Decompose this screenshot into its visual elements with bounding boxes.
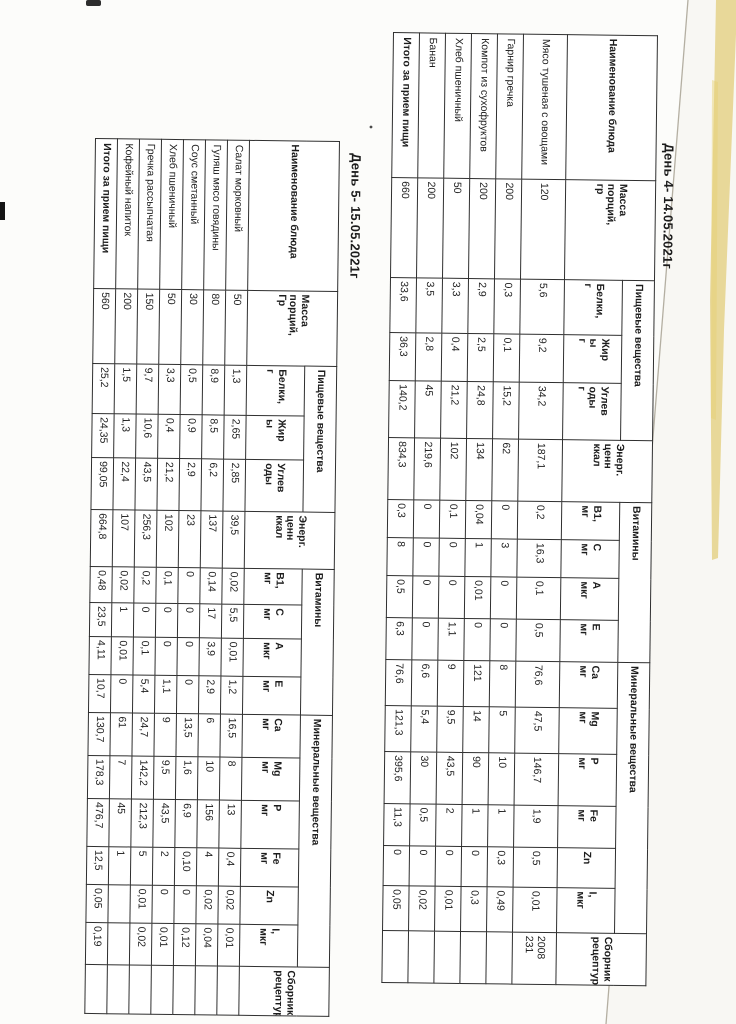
recipe-ref-cell [173, 966, 196, 1015]
value-cell: 0,2 [134, 567, 156, 603]
value-cell: 0,1 [439, 500, 465, 538]
dish-name-cell: Гарнир гречка [496, 34, 524, 179]
value-cell: 0,01 [151, 923, 174, 965]
value-cell: 50 [442, 178, 469, 278]
col-subheader-mineral: Mg мг [241, 757, 300, 801]
recipe-ref-cell [217, 966, 240, 1015]
value-cell: 0 [155, 603, 177, 637]
value-cell: 0,10 [174, 848, 196, 886]
value-cell: 0,1 [516, 577, 561, 620]
value-cell: 4,11 [89, 636, 111, 674]
value-cell: 9,5 [153, 756, 176, 799]
value-cell: 8 [219, 757, 242, 800]
dish-name-cell: Банан [418, 33, 446, 178]
col-header-energy: Энерг. ценн ккал [244, 511, 335, 569]
value-cell: 5,5 [221, 604, 243, 638]
value-cell: 2,8 [415, 333, 442, 381]
value-cell: 0,5 [513, 847, 557, 888]
day5-table-body: Салат морковный501,32,652,8539,50,025,50… [85, 138, 250, 1015]
value-cell: 2,85 [223, 459, 246, 511]
value-cell: 1,3 [224, 365, 247, 415]
value-cell: 24,35 [92, 413, 115, 457]
value-cell: 24,8 [467, 381, 494, 438]
value-cell: 0 [176, 676, 198, 714]
col-header-energy: Энерг. ценн ккал [562, 440, 653, 503]
col-subheader-vitamin: B1, мг [561, 502, 619, 541]
value-cell: 0,5 [410, 804, 437, 846]
value-cell: 6 [198, 714, 221, 757]
value-cell: 0 [491, 501, 517, 539]
value-cell: 24,7 [132, 713, 155, 756]
value-cell: 9 [437, 660, 464, 706]
value-cell: 0,01 [217, 924, 240, 966]
col-group-minerals: Минеральные вещества [297, 715, 332, 967]
col-subheader-vitamin: C мг [243, 604, 301, 639]
value-cell: 560 [93, 288, 116, 363]
col-subheader-mineral: Zn [557, 848, 615, 889]
value-cell: 43,5 [153, 799, 176, 847]
value-cell: 834,3 [388, 438, 415, 500]
value-cell: 13,5 [176, 714, 199, 757]
value-cell: 140,2 [389, 381, 416, 438]
value-cell: 76,6 [385, 660, 412, 706]
col-subheader-mineral: P мг [241, 800, 300, 849]
value-cell: 43,5 [436, 752, 463, 804]
value-cell: 0,01 [464, 576, 491, 618]
recipe-ref-cell [151, 965, 174, 1014]
value-cell: 0,01 [435, 886, 462, 931]
col-subheader-vitamin: B1, мг [244, 568, 302, 605]
value-cell: 660 [391, 178, 418, 278]
col-group-minerals: Минеральные вещества [615, 662, 650, 933]
col-group-vitamins: Витамины [300, 569, 334, 715]
col-header-mass: Масса порций, гр [564, 180, 655, 281]
col-subheader-mineral: Ca мг [559, 662, 618, 709]
value-cell: 0,48 [90, 566, 112, 602]
value-cell: 9 [154, 713, 177, 756]
value-cell: 8 [387, 538, 413, 576]
value-cell: 0 [490, 577, 517, 619]
value-cell: 0 [174, 886, 196, 924]
value-cell: 142,2 [131, 756, 154, 799]
value-cell: 0,4 [158, 414, 181, 458]
value-cell: 61 [110, 713, 133, 756]
value-cell: 0 [490, 619, 517, 661]
value-cell: 36,3 [389, 333, 416, 381]
col-subheader-vitamin: E мг [560, 620, 619, 663]
value-cell: 0 [177, 638, 199, 676]
col-subheader-mineral: Fe мг [240, 848, 298, 887]
value-cell: 1 [462, 804, 489, 846]
value-cell: 8,9 [202, 365, 225, 415]
dish-name-cell: Итого за прием пищи [94, 138, 118, 288]
day4-sheet: День 4- 14.05.2021г Наименование блюдаМа… [376, 32, 698, 986]
value-cell: 212,3 [131, 799, 154, 847]
scanned-page: { "colors": { "paper": "#fcfcfa", "table… [0, 0, 736, 1024]
col-subheader-mineral: I, мкг [239, 924, 298, 967]
value-cell: 16,5 [220, 714, 243, 757]
value-cell: 0,04 [195, 924, 218, 966]
value-cell: 187,1 [518, 439, 563, 502]
col-subheader-nutrient: Углев оды г [563, 383, 622, 441]
dish-name-cell: Компот из сухофруктов [470, 34, 498, 179]
value-cell: 2,9 [468, 279, 495, 334]
day5-sheet: День 5- 15.05.2021г Наименование блюдаМа… [85, 138, 376, 1016]
col-subheader-vitamin: A мкг [560, 578, 619, 621]
value-cell: 120 [520, 179, 565, 280]
dish-name-cell: Кофейный напиток [116, 139, 140, 289]
value-cell: 0 [178, 568, 200, 604]
value-cell: 0,01 [130, 885, 152, 923]
value-cell: 45 [109, 799, 132, 847]
col-subheader-nutrient: Жир ы г [563, 335, 622, 384]
value-cell: 0,49 [487, 887, 514, 932]
value-cell: 2 [152, 847, 174, 885]
col-subheader-mineral: Zn [240, 886, 298, 925]
value-cell: 476,7 [87, 798, 110, 846]
value-cell: 219,6 [414, 438, 441, 500]
value-cell: 50 [225, 290, 248, 365]
recipe-ref-cell [107, 965, 130, 1014]
value-cell: 150 [137, 289, 160, 364]
value-cell: 0 [110, 675, 132, 713]
col-subheader-nutrient: Белки, г [564, 280, 623, 336]
value-cell: 33,6 [390, 278, 417, 333]
value-cell: 15,2 [493, 382, 520, 439]
value-cell: 1 [465, 538, 491, 576]
value-cell: 107 [112, 510, 135, 567]
col-group-nutrients: Пищевые вещества [303, 366, 337, 512]
value-cell: 5 [130, 847, 152, 885]
value-cell: 22,4 [113, 458, 136, 510]
col-group-nutrients: Пищевые вещества [621, 280, 655, 440]
value-cell: 0,4 [441, 333, 468, 381]
value-cell: 102 [156, 510, 179, 567]
value-cell [107, 923, 130, 965]
day4-menu-table: Наименование блюдаМасса порций, грПищевы… [381, 32, 658, 986]
recipe-ref-cell [408, 931, 435, 983]
recipe-ref-cell: 2008 231 [512, 932, 557, 985]
value-cell: 11,3 [384, 804, 411, 846]
value-cell: 6,6 [411, 660, 438, 706]
recipe-ref-cell [85, 964, 108, 1013]
value-cell: 9,2 [519, 334, 564, 383]
value-cell: 0 [435, 846, 461, 886]
value-cell: 1 [108, 847, 130, 885]
recipe-ref-cell [129, 965, 152, 1014]
value-cell: 2,9 [198, 676, 220, 714]
value-cell: 0,3 [461, 886, 488, 931]
value-cell: 0 [413, 500, 439, 538]
col-subheader-mineral: Mg мг [559, 708, 618, 755]
value-cell: 146,7 [514, 753, 559, 806]
value-cell: 21,2 [441, 381, 468, 438]
dish-name-cell: Салат морковный [226, 140, 250, 290]
value-cell: 0,3 [494, 279, 521, 334]
dish-name-cell: Итого за прием пищи [392, 33, 420, 178]
value-cell: 0,01 [111, 637, 133, 675]
col-header-recipe: Сборник рецептур [556, 933, 647, 986]
value-cell: 39,5 [222, 511, 245, 568]
value-cell: 137 [200, 511, 223, 568]
value-cell: 0,02 [129, 923, 152, 965]
value-cell: 200 [468, 179, 495, 279]
dish-name-cell: Гуляш мясо говядины [204, 140, 228, 290]
value-cell: 9,5 [437, 706, 464, 752]
value-cell: 14 [463, 706, 490, 752]
col-subheader-nutrient: Углев оды [245, 459, 304, 512]
value-cell: 0,1 [493, 334, 520, 382]
value-cell: 200 [494, 179, 521, 279]
value-cell: 2,65 [224, 415, 247, 459]
value-cell: 0 [439, 538, 465, 576]
value-cell: 0,02 [112, 567, 134, 603]
dish-name-cell: Гречка рассыпчатая [138, 139, 162, 289]
value-cell: 130,7 [88, 712, 111, 755]
day5-menu-table: Наименование блюдаМасса порций, ГрПищевы… [84, 138, 340, 1017]
col-subheader-vitamin: C мг [561, 540, 619, 579]
value-cell: 395,6 [384, 752, 411, 804]
value-cell: 10 [197, 757, 220, 800]
value-cell: 200 [115, 289, 138, 364]
value-cell: 4 [196, 848, 218, 886]
value-cell: 0,12 [173, 924, 196, 966]
col-header-dish-name: Наименование блюда [248, 140, 340, 291]
value-cell: 0,02 [218, 886, 240, 924]
value-cell: 3,3 [442, 278, 469, 333]
value-cell: 3,3 [158, 364, 181, 414]
value-cell: 121 [463, 660, 490, 706]
value-cell: 0,9 [180, 415, 203, 459]
value-cell: 0,01 [221, 638, 243, 676]
value-cell: 0 [177, 604, 199, 638]
recipe-ref-cell [460, 931, 487, 983]
value-cell: 0 [438, 576, 465, 618]
value-cell: 3 [491, 539, 517, 577]
value-cell: 43,5 [135, 458, 158, 510]
value-cell: 3,9 [199, 638, 221, 676]
col-subheader-mineral: P мг [558, 754, 617, 807]
value-cell: 0 [413, 538, 439, 576]
value-cell: 10,7 [88, 674, 110, 712]
value-cell: 8,5 [202, 415, 225, 459]
value-cell: 2 [436, 804, 463, 846]
value-cell: 1,2 [220, 676, 242, 714]
value-cell: 0,04 [465, 500, 491, 538]
value-cell: 0,3 [387, 500, 413, 538]
value-cell: 0 [155, 637, 177, 675]
value-cell: 0,02 [409, 886, 436, 931]
value-cell: 0,4 [218, 848, 240, 886]
recipe-ref-cell [382, 931, 409, 983]
value-cell: 45 [415, 381, 442, 438]
value-cell: 1,6 [175, 757, 198, 800]
value-cell: 121,3 [385, 706, 412, 752]
value-cell: 0,02 [196, 886, 218, 924]
value-cell: 0 [412, 618, 439, 660]
col-subheader-vitamin: E мг [242, 676, 300, 715]
value-cell: 7 [109, 756, 132, 799]
col-subheader-mineral: I, мкг [557, 888, 616, 934]
col-subheader-mineral: Ca мг [242, 714, 301, 758]
recipe-ref-cell [434, 931, 461, 983]
value-cell: 1,1 [154, 675, 176, 713]
col-subheader-vitamin: A мкг [243, 638, 301, 677]
value-cell: 0 [383, 846, 409, 886]
value-cell: 0,1 [156, 567, 178, 603]
value-cell: 10 [488, 753, 515, 805]
value-cell: 5 [489, 707, 516, 753]
value-cell: 0 [133, 603, 155, 637]
dish-name-cell: Хлеб пшеничный [444, 33, 472, 178]
recipe-ref-cell [486, 932, 513, 984]
value-cell: 5,6 [520, 279, 565, 335]
value-cell: 0,5 [516, 619, 561, 662]
value-cell: 0,3 [487, 847, 513, 887]
value-cell: 90 [462, 752, 489, 804]
value-cell: 1,5 [114, 364, 137, 414]
value-cell: 8 [489, 661, 516, 707]
value-cell: 0 [461, 846, 487, 886]
value-cell: 2,9 [179, 459, 202, 511]
value-cell: 80 [203, 290, 226, 365]
scan-mark [370, 126, 373, 129]
col-subheader-nutrient: Белки, г [246, 365, 305, 416]
dish-name-cell: Соус сметанный [182, 140, 206, 290]
value-cell: 23,5 [89, 602, 111, 636]
value-cell: 2,5 [467, 333, 494, 381]
value-cell: 62 [492, 439, 519, 501]
value-cell: 30 [410, 752, 437, 804]
value-cell: 30 [181, 290, 204, 365]
value-cell: 25,2 [92, 363, 115, 413]
value-cell: 1,3 [114, 414, 137, 458]
value-cell: 9,7 [136, 364, 159, 414]
value-cell: 0,1 [133, 637, 155, 675]
value-cell: 21,2 [157, 458, 180, 510]
col-header-mass: Масса порций, Гр [247, 290, 338, 366]
col-header-dish-name: Наименование блюда [566, 35, 658, 181]
value-cell: 200 [416, 178, 443, 278]
dish-name-cell: Мясо тушеная с овощами [522, 34, 568, 180]
value-cell: 47,5 [515, 707, 560, 754]
value-cell: 5,4 [132, 675, 154, 713]
value-cell: 1 [111, 603, 133, 637]
day4-table-header: Наименование блюдаМасса порций, грПищевы… [556, 35, 658, 986]
value-cell: 664,8 [90, 509, 113, 566]
value-cell: 6,2 [201, 459, 224, 511]
recipe-ref-cell [195, 966, 218, 1015]
value-cell: 0 [152, 885, 174, 923]
value-cell: 50 [159, 289, 182, 364]
value-cell: 1 [488, 805, 515, 847]
value-cell: 34,2 [519, 382, 564, 440]
value-cell: 16,3 [517, 539, 561, 578]
value-cell: 0,14 [200, 568, 222, 604]
value-cell: 6,3 [386, 618, 413, 660]
value-cell: 1,9 [514, 805, 559, 848]
value-cell: 1,1 [438, 618, 465, 660]
value-cell: 0 [409, 846, 435, 886]
value-cell: 17 [199, 604, 221, 638]
value-cell: 0,5 [180, 365, 203, 415]
value-cell: 0,2 [517, 501, 561, 540]
value-cell: 99,05 [91, 457, 114, 509]
value-cell: 23 [178, 511, 201, 568]
value-cell: 0,05 [383, 886, 410, 931]
value-cell: 3,5 [416, 278, 443, 333]
value-cell: 0 [464, 618, 491, 660]
dish-name-cell: Хлеб пшеничный [160, 139, 184, 289]
value-cell: 134 [466, 438, 493, 500]
day4-table-body: Мясо тушеная с овощами1205,69,234,2187,1… [382, 33, 568, 985]
value-cell: 5,4 [411, 706, 438, 752]
day5-table-header: Наименование блюдаМасса порций, ГрПищевы… [239, 140, 340, 1016]
value-cell: 6,9 [175, 800, 198, 848]
value-cell: 256,3 [134, 510, 157, 567]
scan-mark [0, 202, 5, 220]
value-cell [108, 885, 130, 923]
value-cell: 0,05 [86, 884, 108, 922]
col-subheader-nutrient: Жир ы [246, 415, 305, 460]
value-cell: 13 [219, 800, 242, 848]
value-cell: 0,02 [222, 568, 244, 604]
col-header-recipe: Сборник рецептур [239, 966, 330, 1016]
value-cell: 76,6 [515, 661, 560, 708]
value-cell: 10,6 [136, 414, 159, 458]
col-group-vitamins: Витамины [618, 502, 652, 662]
scan-mark [86, 0, 101, 6]
col-subheader-mineral: Fe мг [558, 806, 617, 849]
value-cell: 102 [440, 438, 467, 500]
value-cell: 0,5 [386, 576, 413, 618]
value-cell: 178,3 [87, 755, 110, 798]
value-cell: 0,01 [513, 887, 558, 933]
value-cell: 0,19 [85, 922, 108, 964]
value-cell: 0 [412, 576, 439, 618]
value-cell: 12,5 [86, 846, 108, 884]
value-cell: 156 [197, 800, 220, 848]
